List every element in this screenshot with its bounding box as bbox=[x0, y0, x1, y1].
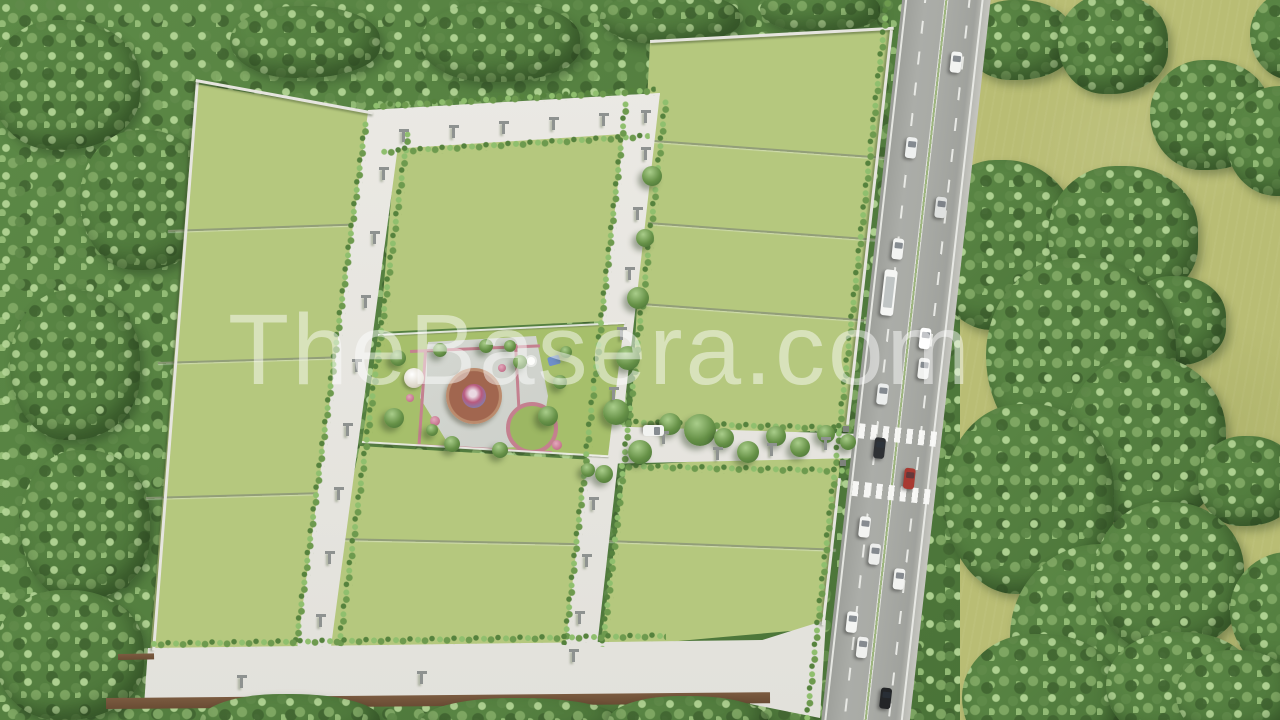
street-lamp-icon bbox=[578, 612, 581, 624]
tree-icon bbox=[790, 437, 810, 457]
tree-icon bbox=[595, 465, 613, 483]
street-lamp-icon bbox=[770, 444, 773, 456]
street-lamp-icon bbox=[373, 232, 376, 244]
street-lamp-icon bbox=[628, 268, 631, 280]
street-lamp-icon bbox=[592, 498, 595, 510]
tree-icon bbox=[714, 428, 734, 448]
tree-grove bbox=[608, 696, 768, 720]
tree-icon bbox=[628, 440, 652, 464]
tree-grove bbox=[420, 698, 620, 720]
tree-icon bbox=[426, 424, 438, 436]
street-lamp-icon bbox=[716, 448, 719, 460]
street-lamp-icon bbox=[346, 424, 349, 436]
site-plan-render: TheBasera.com bbox=[0, 0, 1280, 720]
street-lamp-icon bbox=[552, 118, 555, 130]
tree-icon bbox=[840, 434, 856, 450]
gate-pillar bbox=[843, 426, 849, 432]
street-lamp-icon bbox=[824, 438, 827, 450]
street-lamp-icon bbox=[644, 148, 647, 160]
car-icon bbox=[643, 425, 664, 436]
tree-icon bbox=[538, 406, 558, 426]
street-lamp-icon bbox=[337, 488, 340, 500]
street-lamp-icon bbox=[402, 130, 405, 142]
tree-icon bbox=[636, 229, 654, 247]
street-lamp-icon bbox=[636, 208, 639, 220]
street-lamp-icon bbox=[328, 552, 331, 564]
street-lamp-icon bbox=[502, 122, 505, 134]
street-lamp-icon bbox=[602, 114, 605, 126]
tree-grove bbox=[200, 694, 380, 720]
tree-icon bbox=[737, 441, 759, 463]
street-lamp-icon bbox=[420, 672, 423, 684]
street-lamp-icon bbox=[585, 555, 588, 567]
street-lamp-icon bbox=[240, 676, 243, 688]
tree-icon bbox=[684, 414, 716, 446]
street-lamp-icon bbox=[452, 126, 455, 138]
watermark: TheBasera.com bbox=[228, 300, 988, 400]
tree-icon bbox=[581, 463, 595, 477]
tree-icon bbox=[444, 436, 460, 452]
tree-icon bbox=[492, 442, 508, 458]
street-lamp-icon bbox=[572, 650, 575, 662]
gate-pillar bbox=[840, 460, 846, 466]
tree-icon bbox=[642, 166, 662, 186]
tree-icon bbox=[384, 408, 404, 428]
street-lamp-icon bbox=[382, 168, 385, 180]
street-lamp-icon bbox=[644, 111, 647, 123]
street-lamp-icon bbox=[319, 615, 322, 627]
